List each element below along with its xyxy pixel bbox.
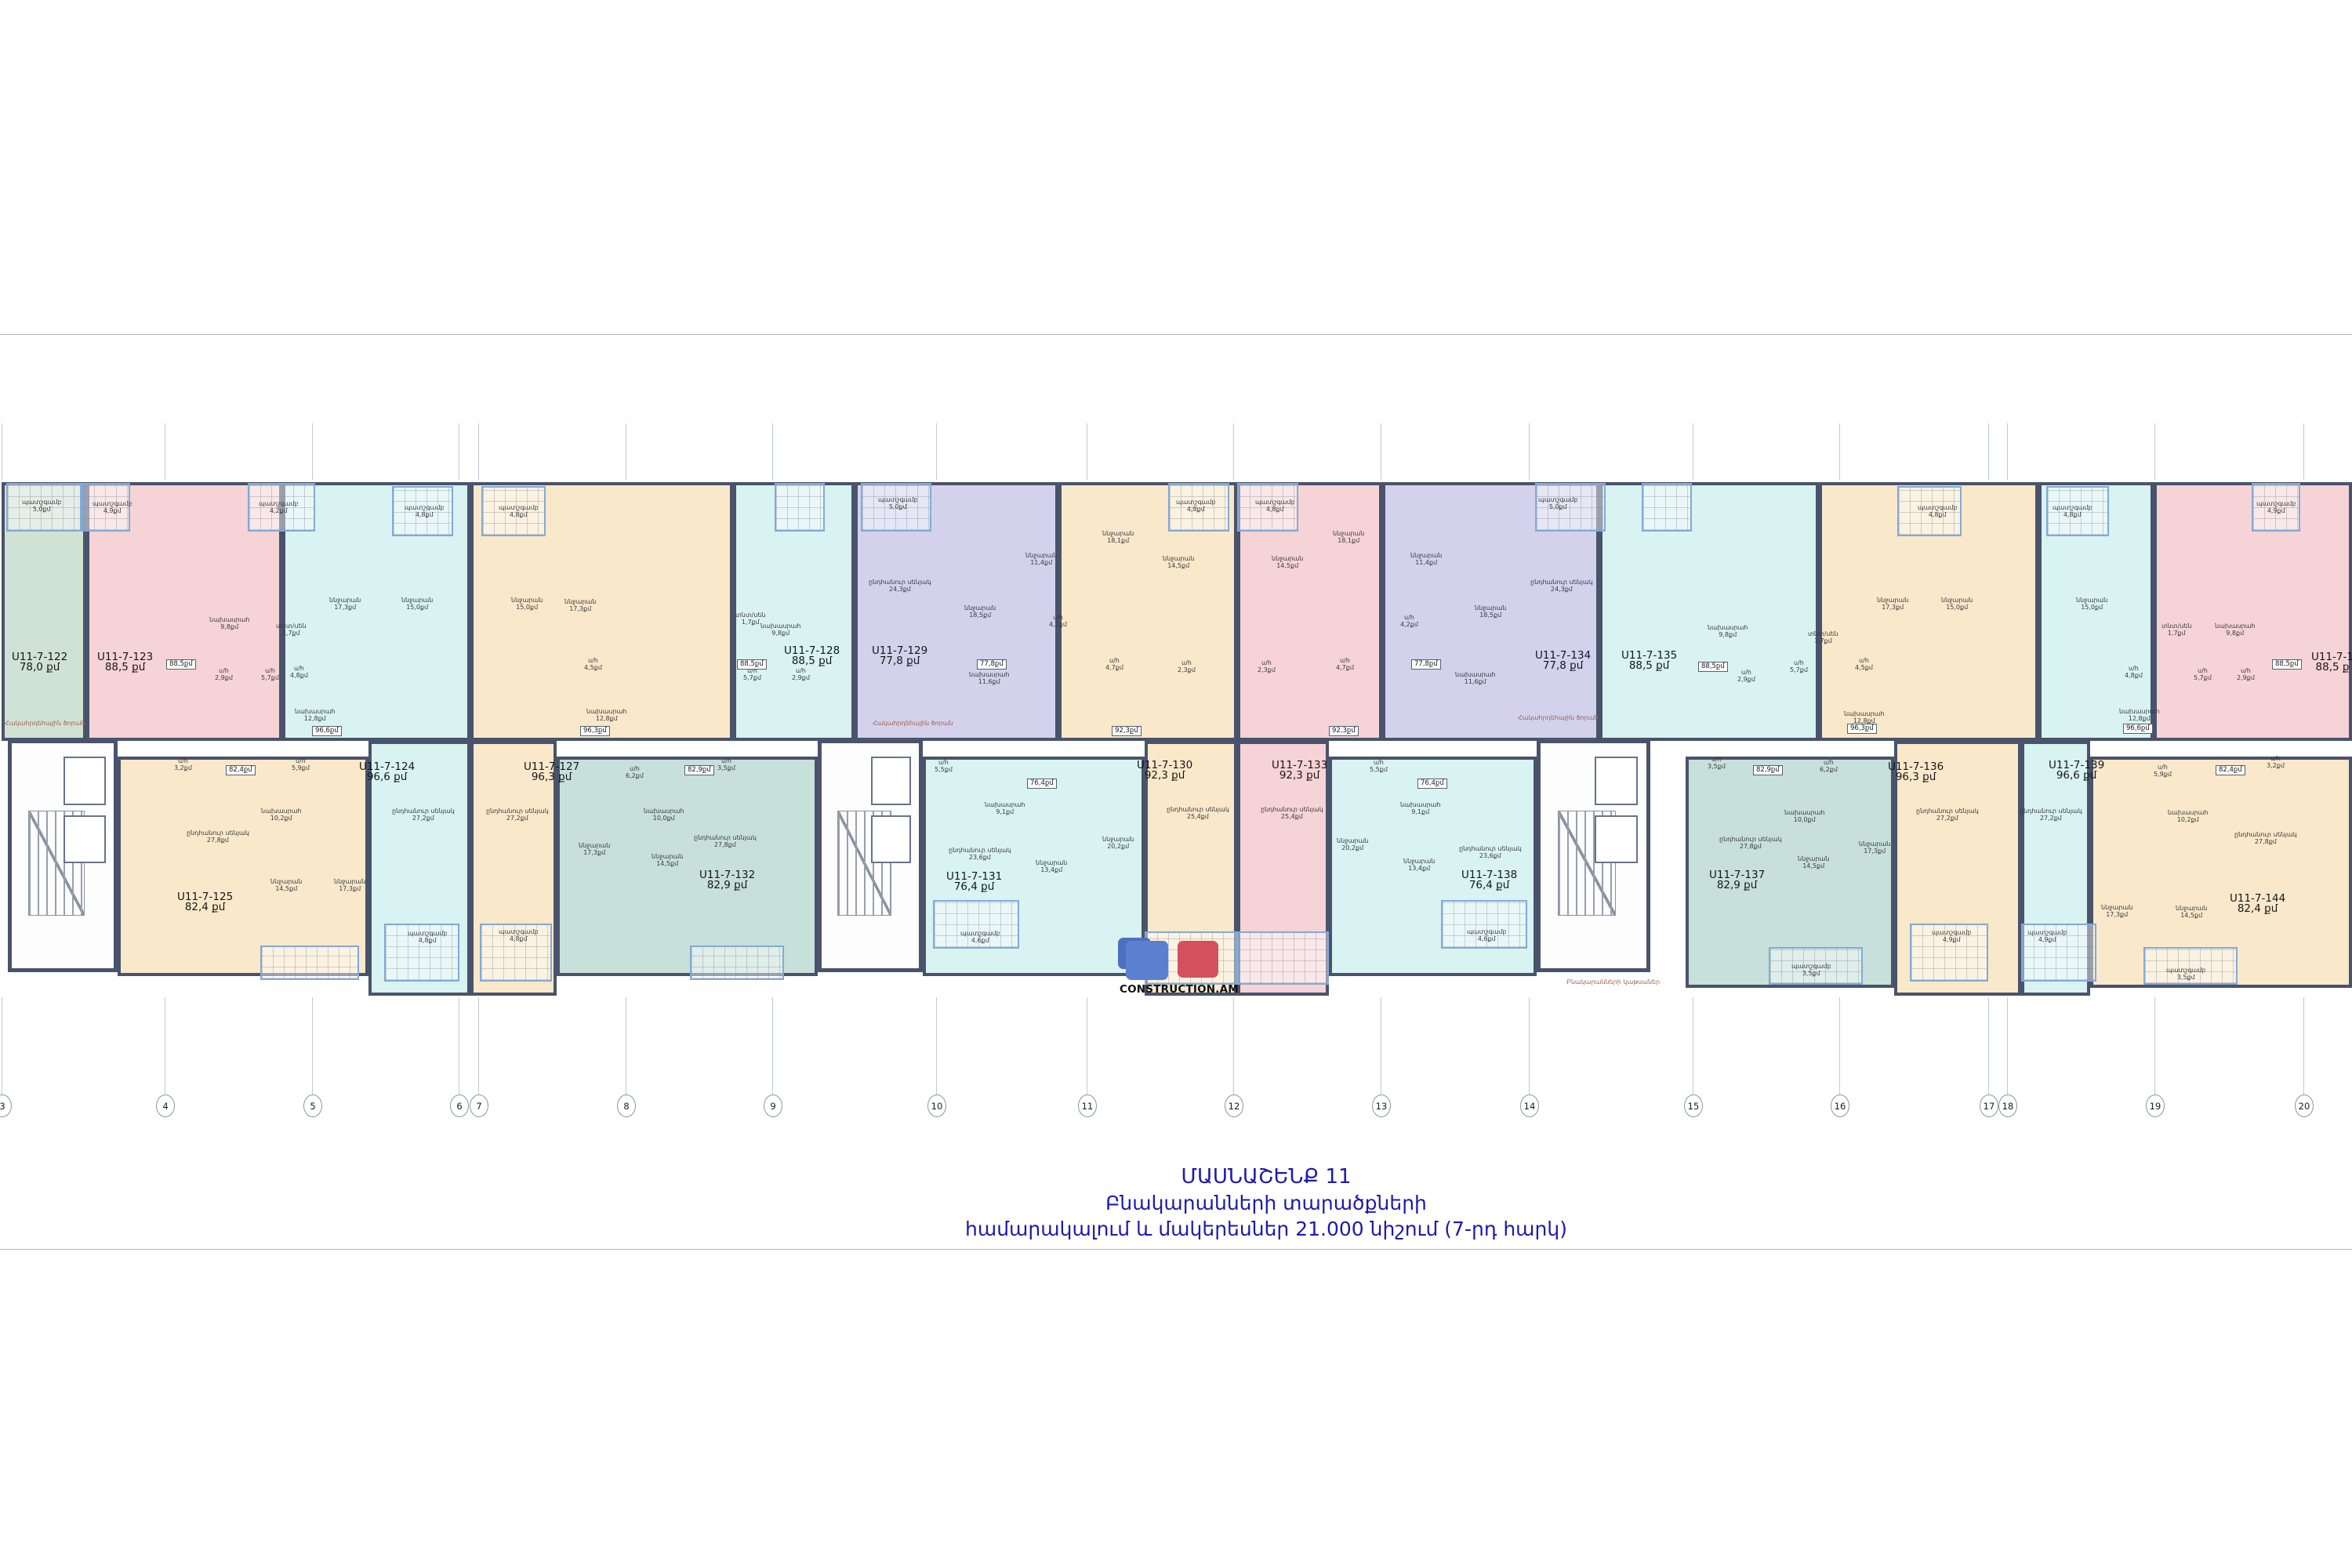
room-area: 4,2քմ — [1049, 621, 1067, 628]
room-name: ընդհանուր սենյակ — [694, 834, 757, 841]
room-name: ննջարան — [334, 878, 365, 885]
room-label: ս/հ2,3քմ — [1258, 659, 1276, 673]
elevator-shaft-icon — [871, 757, 911, 804]
logo-blue-square — [1126, 941, 1168, 980]
room-name: ննջարան — [1163, 555, 1194, 562]
room-label: ընդհանուր սենյակ25,4քմ — [1261, 806, 1323, 820]
apartment-label-Ս11-7-127: Ս11-7-12796,3 քմ — [524, 762, 579, 782]
room-area: 17,3քմ — [1859, 848, 1890, 855]
room-name: ս/հ — [1855, 657, 1873, 664]
room-area: 15,0քմ — [511, 604, 543, 611]
room-area: 1,7քմ — [2161, 630, 2192, 637]
balcony — [260, 946, 359, 980]
room-name: պատշգամբ — [1538, 496, 1578, 503]
room-label: պատշգամբ5,0քմ — [1538, 496, 1578, 510]
room-name: ննջարան — [1475, 604, 1506, 612]
room-label: պատշգամբ4,9քմ — [2027, 929, 2067, 943]
room-label: ննջարան18,1քմ — [1102, 530, 1134, 544]
apartment-total-area: 76,4 քմ — [1461, 880, 1517, 891]
room-area: 4,2քմ — [259, 507, 299, 514]
room-area: 4,8քմ — [1918, 511, 1958, 518]
room-area: 14,5քմ — [652, 860, 683, 867]
room-label: տնտ/սեն1,7քմ — [735, 612, 766, 626]
room-name: պատշգամբ — [1255, 499, 1295, 506]
room-label: ընդհանուր սենյակ27,8քմ — [2234, 831, 2297, 845]
room-area: 11,4քմ — [1025, 559, 1057, 566]
grid-marker-4: 4 — [156, 1094, 175, 1117]
apartment-label-Ս11-7-135: Ս11-7-13588,5 քմ — [1621, 651, 1677, 671]
room-area: 24,3քմ — [1530, 586, 1593, 593]
room-area: 4,7քմ — [1336, 664, 1354, 671]
room-label: ս/հ3,2քմ — [174, 757, 192, 771]
room-area: 10,2քմ — [2168, 816, 2209, 823]
area-plate-Ս11-7-144: 82,4քմ — [2216, 765, 2245, 775]
room-area: 5,5քմ — [935, 766, 953, 773]
room-name: ննջարան — [1333, 530, 1364, 537]
apartment-total-area: 96,3 քմ — [1888, 772, 1944, 782]
room-label: ս/հ5,5քմ — [1370, 759, 1388, 773]
room-name: ննջարան — [1272, 555, 1303, 562]
apartment-total-area: 88,5 քմ — [97, 662, 153, 673]
room-label: պատշգամբ3,5քմ — [1791, 963, 1831, 977]
room-label: պատշգամբ4,8քմ — [408, 930, 448, 944]
room-label: նախասրահ12,8քմ — [1844, 710, 1885, 724]
room-name: նախասրահ — [295, 708, 336, 715]
room-name: նախասրահ — [1784, 809, 1825, 816]
room-name: ընդհանուր սենյակ — [1167, 806, 1229, 813]
annotation-note: Հակահրդեհային ծորան — [1518, 714, 1599, 721]
sheet-subtitle-1: Բնակարանների տարածքների — [862, 1190, 1670, 1216]
room-area: 17,3քմ — [2101, 911, 2132, 918]
room-name: նախասրահ — [2119, 708, 2160, 715]
room-label: նախասրահ9,8քմ — [209, 616, 250, 630]
room-area: 14,5քմ — [1272, 562, 1303, 569]
room-area: 4,8քմ — [408, 937, 448, 944]
room-name: նախասրահ — [760, 622, 801, 630]
room-label: ընդհանուր սենյակ24,3քմ — [1530, 579, 1593, 593]
room-label: պատշգամբ4,9քմ — [1932, 929, 1972, 943]
room-label: պատշգամբ5,0քմ — [878, 496, 918, 510]
apartment-label-Ս11-7-131: Ս11-7-13176,4 քմ — [946, 872, 1002, 892]
room-label: ընդհանուր սենյակ25,4քմ — [1167, 806, 1229, 820]
apartment-label-Ս11-7-128: Ս11-7-12888,5 քմ — [784, 646, 840, 666]
room-name: ննջարան — [1025, 552, 1057, 559]
room-area: 3,2քմ — [2267, 762, 2285, 769]
grid-marker-6: 6 — [450, 1094, 469, 1117]
room-name: ս/հ — [935, 759, 953, 766]
room-area: 14,5քմ — [1798, 862, 1829, 869]
room-area: 4,9քմ — [2256, 507, 2296, 514]
room-area: 4,7քմ — [1105, 664, 1123, 671]
room-area: 4,8քմ — [499, 511, 539, 518]
room-name: ընդհանուր սենյակ — [1530, 579, 1593, 586]
annotation-note: Բնակարանների կաթսաներ — [1566, 978, 1660, 985]
apartment-total-area: 88,5 քմ — [784, 656, 840, 666]
room-label: նախասրահ12,8քմ — [586, 708, 627, 722]
room-name: նախասրահ — [644, 808, 684, 815]
room-name: ընդհանուր սենյակ — [949, 847, 1011, 854]
room-name: նախասրահ — [209, 616, 250, 623]
apartment-total-area: 82,4 քմ — [177, 902, 233, 913]
logo-red-square — [1178, 941, 1218, 978]
elevator-shaft-icon — [871, 815, 911, 863]
room-label: ս/հ2,3քմ — [1178, 659, 1196, 673]
room-area: 5,9քմ — [292, 764, 310, 771]
room-area: 18,1քմ — [1333, 537, 1364, 544]
room-name: ննջարան — [2101, 904, 2132, 911]
room-area: 2,9քմ — [1737, 676, 1755, 683]
area-plate-Ս11-7-124: 96,6քմ — [312, 726, 342, 736]
room-name: ս/հ — [1737, 669, 1755, 676]
room-label: ննջարան14,5քմ — [2176, 905, 2207, 919]
room-area: 1,7քմ — [735, 619, 766, 626]
room-area: 5,7քմ — [261, 674, 279, 681]
grid-marker-19: 19 — [2146, 1094, 2165, 1117]
room-label: նախասրահ10,0քմ — [1784, 809, 1825, 823]
room-label: ս/հ5,7քմ — [1790, 659, 1808, 673]
room-label: ննջարան15,0քմ — [401, 597, 433, 611]
room-area: 15,0քմ — [1941, 604, 1973, 611]
room-area: 25,4քմ — [1261, 813, 1323, 820]
room-area: 5,5քմ — [1370, 766, 1388, 773]
room-label: ննջարան20,2քմ — [1102, 836, 1134, 850]
room-label: ննջարան17,3քմ — [1859, 840, 1890, 855]
room-name: ննջարան — [2176, 905, 2207, 912]
balcony — [1642, 483, 1692, 532]
room-label: ննջարան14,5քմ — [270, 878, 302, 892]
room-name: տնտ/սեն — [1808, 630, 1838, 637]
room-label: ննջարան11,4քմ — [1025, 552, 1057, 566]
room-label: պատշգամբ4,8քմ — [499, 504, 539, 518]
room-label: ս/հ2,9քմ — [792, 667, 810, 681]
apartment-label-Ս11-7-132: Ս11-7-13282,9 քմ — [699, 870, 755, 891]
room-name: ս/հ — [290, 665, 308, 672]
room-area: 17,3քմ — [579, 849, 610, 856]
apartment-label-Ս11-7-144: Ս11-7-14482,4 քմ — [2230, 894, 2285, 914]
room-area: 20,2քմ — [1102, 843, 1134, 850]
room-area: 24,3քմ — [869, 586, 931, 593]
room-area: 5,7քմ — [743, 674, 761, 681]
room-label: ննջարան17,3քմ — [329, 597, 361, 611]
room-area: 4,8քմ — [405, 511, 445, 518]
room-area: 27,2քմ — [392, 815, 455, 822]
room-area: 17,3քմ — [334, 885, 365, 892]
room-label: ս/հ5,9քմ — [2154, 764, 2172, 778]
room-name: պատշգամբ — [1176, 499, 1216, 506]
room-area: 5,0քմ — [1538, 503, 1578, 510]
balcony — [1237, 931, 1329, 985]
room-label: նախասրահ9,8քմ — [1708, 624, 1748, 638]
room-name: ս/հ — [2267, 755, 2285, 762]
room-name: պատշգամբ — [22, 499, 62, 506]
room-label: ընդհանուր սենյակ27,8քմ — [694, 834, 757, 848]
apartment-total-area: 92,3 քմ — [1272, 771, 1327, 781]
room-name: ս/հ — [1820, 759, 1838, 766]
elevator-shaft-icon — [64, 757, 105, 804]
room-label: պատշգամբ4,8քմ — [1255, 499, 1295, 513]
room-label: նախասրահ10,0քմ — [644, 808, 684, 822]
apartment-total-area: 88,5 ք — [2311, 662, 2352, 673]
room-label: պատշգամբ3,5քմ — [2166, 967, 2206, 981]
room-name: տնտ/սեն — [735, 612, 766, 619]
room-name: ընդհանուր սենյակ — [392, 808, 455, 815]
grid-marker-20: 20 — [2295, 1094, 2314, 1117]
room-name: պատշգամբ — [2256, 500, 2296, 507]
room-label: նախասրահ11,6քմ — [969, 671, 1010, 685]
room-name: ս/հ — [2125, 665, 2143, 672]
apartment-total-area: 88,5 քմ — [1621, 661, 1677, 671]
room-label: պատշգամբ4,6քմ — [960, 930, 1000, 944]
room-name: պատշգամբ — [259, 500, 299, 507]
room-area: 5,0քմ — [878, 503, 918, 510]
room-area: 4,9քմ — [93, 507, 132, 514]
room-label: ննջարան20,2քմ — [1337, 837, 1368, 851]
room-label: ննջարան17,3քմ — [334, 878, 365, 892]
title-block: ՄԱՍՆԱՇԵՆՔ 11 Բնակարանների տարածքների համ… — [862, 1163, 1670, 1242]
room-label: ննջարան14,5քմ — [1798, 855, 1829, 869]
apartment-total-area: 77,8 քմ — [872, 656, 927, 666]
grid-marker-16: 16 — [1831, 1094, 1849, 1117]
area-plate-Ս11-7-123: 88,5քմ — [166, 659, 196, 670]
room-area: 18,1քմ — [1102, 537, 1134, 544]
room-name: պատշգամբ — [408, 930, 448, 937]
room-label: նախասրահ12,8քմ — [2119, 708, 2160, 722]
room-name: ննջարան — [1102, 836, 1134, 843]
room-area: 11,4քմ — [1410, 559, 1442, 566]
room-label: նախասրահ9,8քմ — [2215, 622, 2256, 637]
room-area: 1,7քմ — [276, 630, 307, 637]
area-plate-Ս11-7-130: 92,3քմ — [1112, 726, 1142, 736]
grid-marker-5: 5 — [303, 1094, 322, 1117]
room-area: 18,5քմ — [1475, 612, 1506, 619]
apartment-area-Ս11-7-135 — [1599, 482, 1819, 741]
room-label: ս/հ3,2քմ — [2267, 755, 2285, 769]
room-area: 23,6քմ — [1459, 852, 1522, 859]
apartment-label-Ս11-7-122: Ս11-7-12278,0 քմ — [12, 652, 67, 673]
grid-marker-8: 8 — [617, 1094, 636, 1117]
room-area: 6,2քմ — [1820, 766, 1838, 773]
room-area: 3,5քմ — [1708, 763, 1726, 770]
room-area: 6,2քմ — [626, 772, 644, 779]
room-label: ննջարան17,3քմ — [2101, 904, 2132, 918]
room-name: ննջարան — [270, 878, 302, 885]
apartment-area-Ս11-7-132 — [557, 757, 818, 976]
room-label: պատշգամբ4,9քմ — [2256, 500, 2296, 514]
room-name: պատշգամբ — [2166, 967, 2206, 974]
room-label: ննջարան14,5քմ — [1272, 555, 1303, 569]
room-label: պատշգամբ4,6քմ — [1467, 928, 1507, 942]
grid-marker-12: 12 — [1225, 1094, 1243, 1117]
room-area: 11,6քմ — [969, 678, 1010, 685]
area-plate-Ս11-7-133: 92,3քմ — [1329, 726, 1359, 736]
annotation-note: Հակահրդեհային ծորան — [5, 720, 85, 727]
room-label: ս/հ4,7քմ — [1105, 657, 1123, 671]
apartment-total-area: 76,4 քմ — [946, 882, 1002, 892]
area-plate-Ս11-7-127: 96,3քմ — [580, 726, 610, 736]
room-area: 2,9քմ — [2237, 674, 2255, 681]
grid-marker-3: 3 — [0, 1094, 12, 1117]
room-label: ընդհանուր սենյակ27,8քմ — [1719, 836, 1782, 850]
room-label: ս/հ3,5քմ — [717, 757, 735, 771]
room-area: 4,9քմ — [2027, 936, 2067, 943]
room-area: 23,6քմ — [949, 854, 1011, 861]
room-name: ննջարան — [329, 597, 361, 604]
room-area: 12,8քմ — [2119, 715, 2160, 722]
grid-marker-13: 13 — [1372, 1094, 1391, 1117]
room-area: 2,9քմ — [792, 674, 810, 681]
room-area: 12,8քմ — [295, 715, 336, 722]
room-name: ս/հ — [261, 667, 279, 674]
elevator-shaft-icon — [1595, 757, 1638, 804]
room-name: ս/հ — [1336, 657, 1354, 664]
grid-marker-7: 7 — [470, 1094, 488, 1117]
room-area: 2,3քմ — [1178, 666, 1196, 673]
room-label: նախասրահ10,2քմ — [2168, 809, 2209, 823]
grid-marker-14: 14 — [1520, 1094, 1539, 1117]
apartment-total-area: 78,0 քմ — [12, 662, 67, 673]
apartment-total-area: 96,6 քմ — [359, 772, 415, 782]
area-plate-Ս11-7-138: 76,4քմ — [1417, 779, 1447, 789]
stair-core-1 — [8, 739, 118, 972]
room-label: ննջարան15,0քմ — [511, 597, 543, 611]
apartment-total-area: 77,8 քմ — [1535, 661, 1591, 671]
area-plate-Ս11-7-125: 82,4քմ — [226, 765, 256, 775]
room-area: 27,8քմ — [187, 837, 249, 844]
room-label: ննջարան13,4քմ — [1036, 859, 1067, 873]
room-name: պատշգամբ — [499, 504, 539, 511]
room-label: պատշգամբ4,8քմ — [499, 928, 539, 942]
room-area: 4,8քմ — [2053, 511, 2092, 518]
room-name: նախասրահ — [2168, 809, 2209, 816]
apartment-total-area: 82,4 քմ — [2230, 904, 2285, 914]
room-label: ննջարան18,1քմ — [1333, 530, 1364, 544]
room-label: պատշգամբ4,8քմ — [405, 504, 445, 518]
room-area: 1,7քմ — [1808, 637, 1838, 644]
area-plate-Ս11-7-134: 77,8քմ — [1411, 659, 1441, 670]
area-plate-Ս11-7-129: 77,8քմ — [977, 659, 1007, 670]
room-label: ննջարան17,3քմ — [1877, 597, 1908, 611]
room-label: պատշգամբ4,9քմ — [93, 500, 132, 514]
room-name: ննջարան — [1798, 855, 1829, 862]
room-name: տնտ/սեն — [276, 622, 307, 630]
room-name: նախասրահ — [1400, 801, 1441, 808]
room-area: 4,6քմ — [1467, 935, 1507, 942]
room-label: ս/հ4,8քմ — [290, 665, 308, 679]
balcony — [690, 946, 784, 980]
room-label: ս/հ5,5քմ — [935, 759, 953, 773]
area-plate-Ս11-7-131: 76,4քմ — [1027, 779, 1057, 789]
room-name: ննջարան — [1410, 552, 1442, 559]
room-label: ս/հ4,5քմ — [584, 657, 602, 671]
room-name: ընդհանուր սենյակ — [486, 808, 549, 815]
room-label: ս/հ4,5քմ — [1855, 657, 1873, 671]
grid-marker-15: 15 — [1684, 1094, 1703, 1117]
room-name: ս/հ — [792, 667, 810, 674]
room-label: ս/հ4,2քմ — [1400, 614, 1418, 628]
room-area: 3,5քմ — [717, 764, 735, 771]
apartment-area-Ս11-7-125 — [118, 757, 368, 976]
room-name: տնտ/սեն — [2161, 622, 2192, 630]
room-area: 27,8քմ — [694, 841, 757, 848]
area-plate-Ս11-7-139: 96,6քմ — [2123, 724, 2153, 734]
room-name: ննջարան — [652, 853, 683, 860]
room-area: 10,2քմ — [261, 815, 302, 822]
room-name: ընդհանուր սենյակ — [2234, 831, 2297, 838]
room-area: 9,8քմ — [2215, 630, 2256, 637]
annotation-note: Հակահրդեհային ծորան — [873, 720, 953, 727]
frame-line-top — [0, 334, 2352, 335]
room-name: ս/հ — [1178, 659, 1196, 666]
room-name: ս/հ — [1049, 614, 1067, 621]
room-label: ս/հ5,9քմ — [292, 757, 310, 771]
room-name: ննջարան — [1337, 837, 1368, 844]
room-area: 4,9քմ — [1932, 936, 1972, 943]
room-name: պատշգամբ — [960, 930, 1000, 937]
room-area: 11,6քմ — [1455, 678, 1496, 685]
room-label: տնտ/սեն1,7քմ — [276, 622, 307, 637]
room-label: ննջարան14,5քմ — [1163, 555, 1194, 569]
room-area: 5,0քմ — [22, 506, 62, 513]
room-name: ս/հ — [717, 757, 735, 764]
room-area: 12,8քմ — [586, 715, 627, 722]
apartment-label-Ս11-7-124: Ս11-7-12496,6 քմ — [359, 762, 415, 782]
area-plate-Ս11-7-132: 82,9քմ — [684, 765, 714, 775]
room-name: ս/հ — [2154, 764, 2172, 771]
room-label: ընդհանուր սենյակ23,6քմ — [1459, 845, 1522, 859]
logo-text: CONSTRUCTION.AM — [1120, 983, 1239, 996]
stair-core-2 — [818, 739, 923, 972]
room-area: 14,5քմ — [1163, 562, 1194, 569]
room-area: 13,4քմ — [1036, 866, 1067, 873]
room-name: ս/հ — [626, 765, 644, 772]
apartment-total-area: 96,6 քմ — [2049, 771, 2104, 781]
room-label: պատշգամբ4,8քմ — [1918, 504, 1958, 518]
room-label: տնտ/սեն1,7քմ — [2161, 622, 2192, 637]
room-area: 9,8քմ — [1708, 631, 1748, 638]
room-name: պատշգամբ — [1467, 928, 1507, 935]
room-name: ընդհանուր սենյակ — [1459, 845, 1522, 852]
room-area: 15,0քմ — [2076, 604, 2107, 611]
room-name: պատշգամբ — [93, 500, 132, 507]
room-name: ննջարան — [964, 604, 996, 612]
room-name: ընդհանուր սենյակ — [1719, 836, 1782, 843]
room-name: պատշգամբ — [499, 928, 539, 935]
room-name: ննջարան — [1036, 859, 1067, 866]
elevator-shaft-icon — [64, 815, 105, 863]
area-plate-Ս11-7-1: 88,5քմ — [2272, 659, 2302, 670]
room-name: ընդհանուր սենյակ — [1261, 806, 1323, 813]
room-name: նախասրահ — [2215, 622, 2256, 630]
grid-marker-18: 18 — [1998, 1094, 2017, 1117]
room-name: ս/հ — [1370, 759, 1388, 766]
room-area: 4,6քմ — [960, 937, 1000, 944]
room-name: ս/հ — [1790, 659, 1808, 666]
room-area: 4,2քմ — [1400, 621, 1418, 628]
room-label: ս/հ2,9քմ — [2237, 667, 2255, 681]
room-label: ս/հ6,2քմ — [626, 765, 644, 779]
room-label: ընդհանուր սենյակ24,3քմ — [869, 579, 931, 593]
room-area: 10,0քմ — [1784, 816, 1825, 823]
room-name: ննջարան — [511, 597, 543, 604]
room-area: 4,8քմ — [499, 935, 539, 942]
room-area: 17,3քմ — [329, 604, 361, 611]
room-name: պատշգամբ — [878, 496, 918, 503]
room-name: ընդհանուր սենյակ — [869, 579, 931, 586]
room-name: ս/հ — [1708, 756, 1726, 763]
apartment-label-Ս11-7-130: Ս11-7-13092,3 քմ — [1137, 760, 1192, 781]
room-area: 2,3քմ — [1258, 666, 1276, 673]
room-label: ընդհանուր սենյակ27,2քմ — [392, 808, 455, 822]
